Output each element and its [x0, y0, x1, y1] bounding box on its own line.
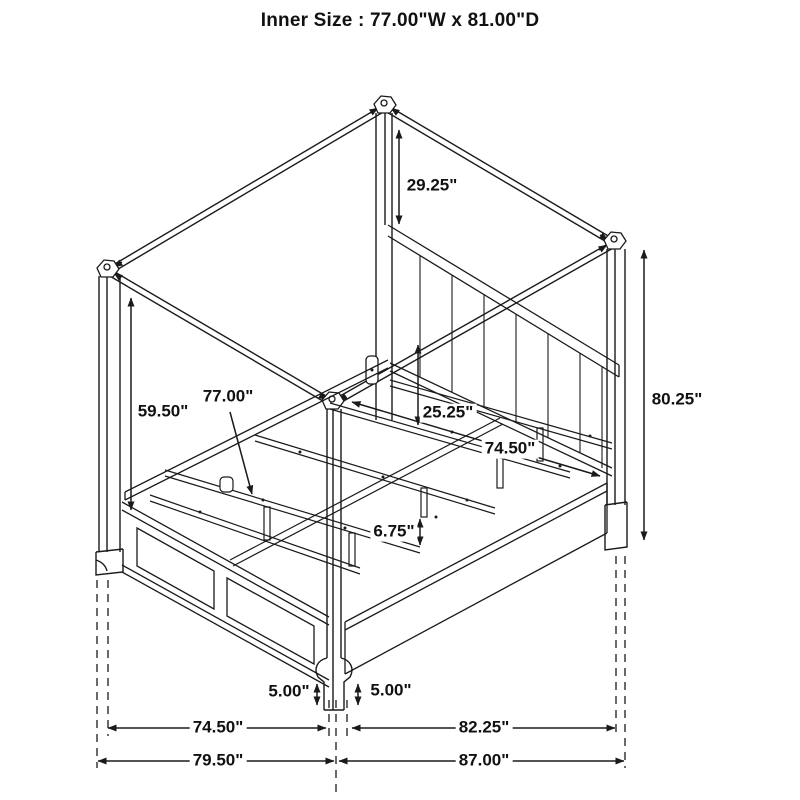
corner-block-right	[604, 232, 626, 249]
dim-label-canopy-to-rail-left: 59.50"	[135, 403, 192, 422]
extension-lines	[97, 556, 625, 792]
dim-label-post-base-left: 5.00"	[265, 683, 312, 702]
dim-label-floor-depth-inner: 82.25"	[456, 719, 513, 738]
corner-block-left	[97, 260, 119, 277]
dim-label-overall-height: 80.25"	[649, 391, 706, 410]
canopy-corner-blocks	[97, 96, 626, 409]
canopy-inner-size-arrows	[114, 108, 608, 401]
dim-label-slat-leg-height: 6.75"	[370, 523, 417, 542]
canopy-frame	[108, 104, 615, 407]
slat-assembly	[150, 380, 612, 574]
dim-label-side-rail-length: 74.50"	[482, 440, 539, 459]
corner-block-back	[374, 96, 396, 113]
dim-label-floor-width-inner: 74.50"	[190, 719, 247, 738]
page-title: Inner Size : 77.00"W x 81.00"D	[261, 10, 540, 32]
bed-dimension-diagram: Inner Size : 77.00"W x 81.00"D 29.25" 59…	[0, 0, 800, 800]
dim-label-inner-width-slats: 77.00"	[200, 388, 257, 407]
side-rail-right	[345, 483, 607, 674]
footboard	[122, 502, 329, 687]
dim-label-floor-depth-overall: 87.00"	[456, 752, 513, 771]
dim-label-floor-width-overall: 79.50"	[190, 752, 247, 771]
dim-label-headboard-panel-height: 25.25"	[420, 404, 477, 423]
dim-label-post-base-right: 5.00"	[367, 682, 414, 701]
headboard	[366, 225, 619, 468]
dim-label-post-above-headboard: 29.25"	[404, 177, 461, 196]
